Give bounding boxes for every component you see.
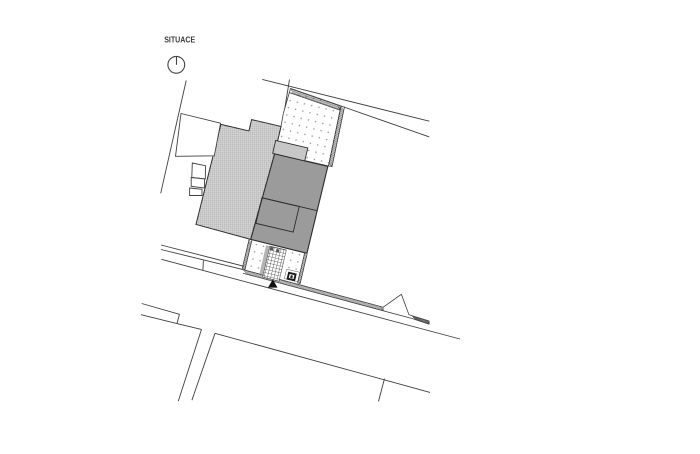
svg-text:SITUACE: SITUACE — [164, 35, 195, 45]
